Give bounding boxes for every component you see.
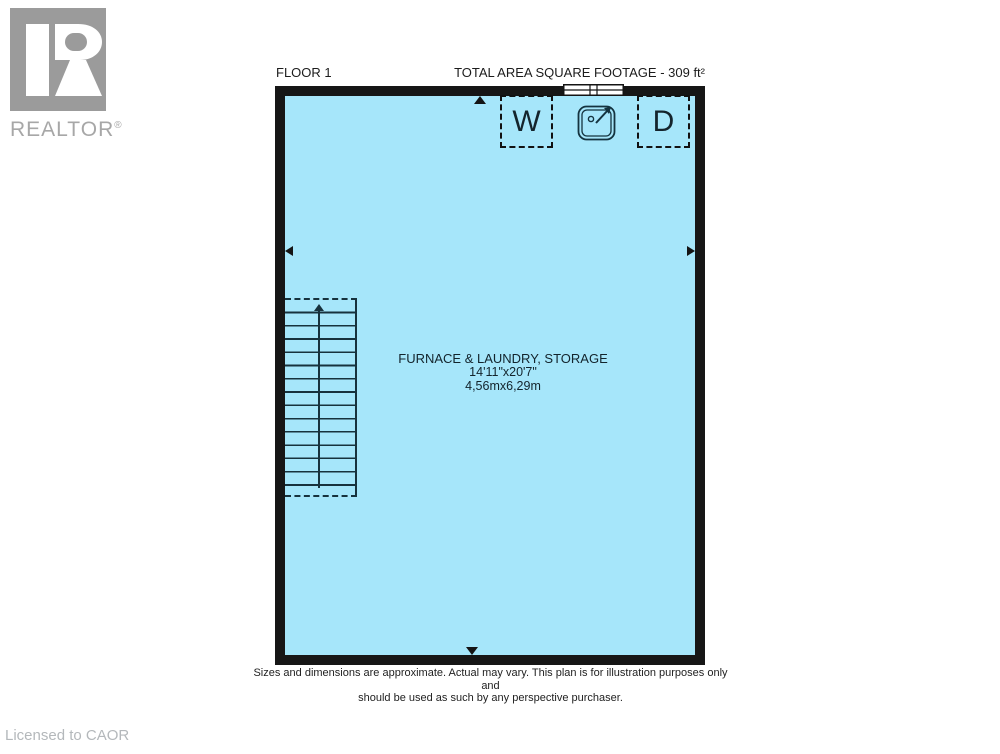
disclaimer-line1: Sizes and dimensions are approximate. Ac…: [253, 667, 728, 692]
floorplan: W D FURNACE & LAUNDRY, STORAGE 14'11"x20…: [275, 86, 705, 665]
dryer-box: D: [637, 95, 690, 148]
dimension-arrow-down-icon: [466, 647, 478, 655]
registered-trademark: ®: [114, 120, 122, 131]
laundry-sink-icon: [577, 103, 617, 141]
washer-label: W: [512, 105, 540, 139]
dimension-arrow-up-icon: [474, 96, 486, 104]
floorplan-page: REALTOR® FLOOR 1 TOTAL AREA SQUARE FOOTA…: [0, 0, 1000, 754]
dimension-arrow-right-icon: [687, 246, 695, 256]
total-area-label: TOTAL AREA SQUARE FOOTAGE - 309 ft²: [454, 65, 705, 80]
realtor-r-icon: [10, 8, 106, 111]
floor-label: FLOOR 1: [276, 65, 332, 80]
realtor-logo: REALTOR®: [10, 8, 120, 142]
washer-box: W: [500, 95, 553, 148]
plan-header: FLOOR 1 TOTAL AREA SQUARE FOOTAGE - 309 …: [276, 65, 705, 80]
stairs-centerline: [318, 310, 320, 488]
room-name: FURNACE & LAUNDRY, STORAGE: [303, 352, 703, 366]
room-label: FURNACE & LAUNDRY, STORAGE 14'11"x20'7" …: [303, 352, 703, 393]
dryer-label: D: [653, 105, 675, 139]
window-icon: [563, 84, 624, 96]
disclaimer: Sizes and dimensions are approximate. Ac…: [253, 667, 728, 705]
room-dimensions-imperial: 14'11"x20'7": [303, 366, 703, 380]
licensed-to-label: Licensed to CAOR: [5, 727, 129, 744]
room-dimensions-metric: 4,56mx6,29m: [303, 380, 703, 394]
disclaimer-line2: should be used as such by any perspectiv…: [253, 692, 728, 705]
dimension-arrow-left-icon: [285, 246, 293, 256]
staircase: [285, 298, 357, 497]
realtor-text: REALTOR: [10, 118, 114, 141]
realtor-wordmark: REALTOR®: [10, 118, 120, 142]
